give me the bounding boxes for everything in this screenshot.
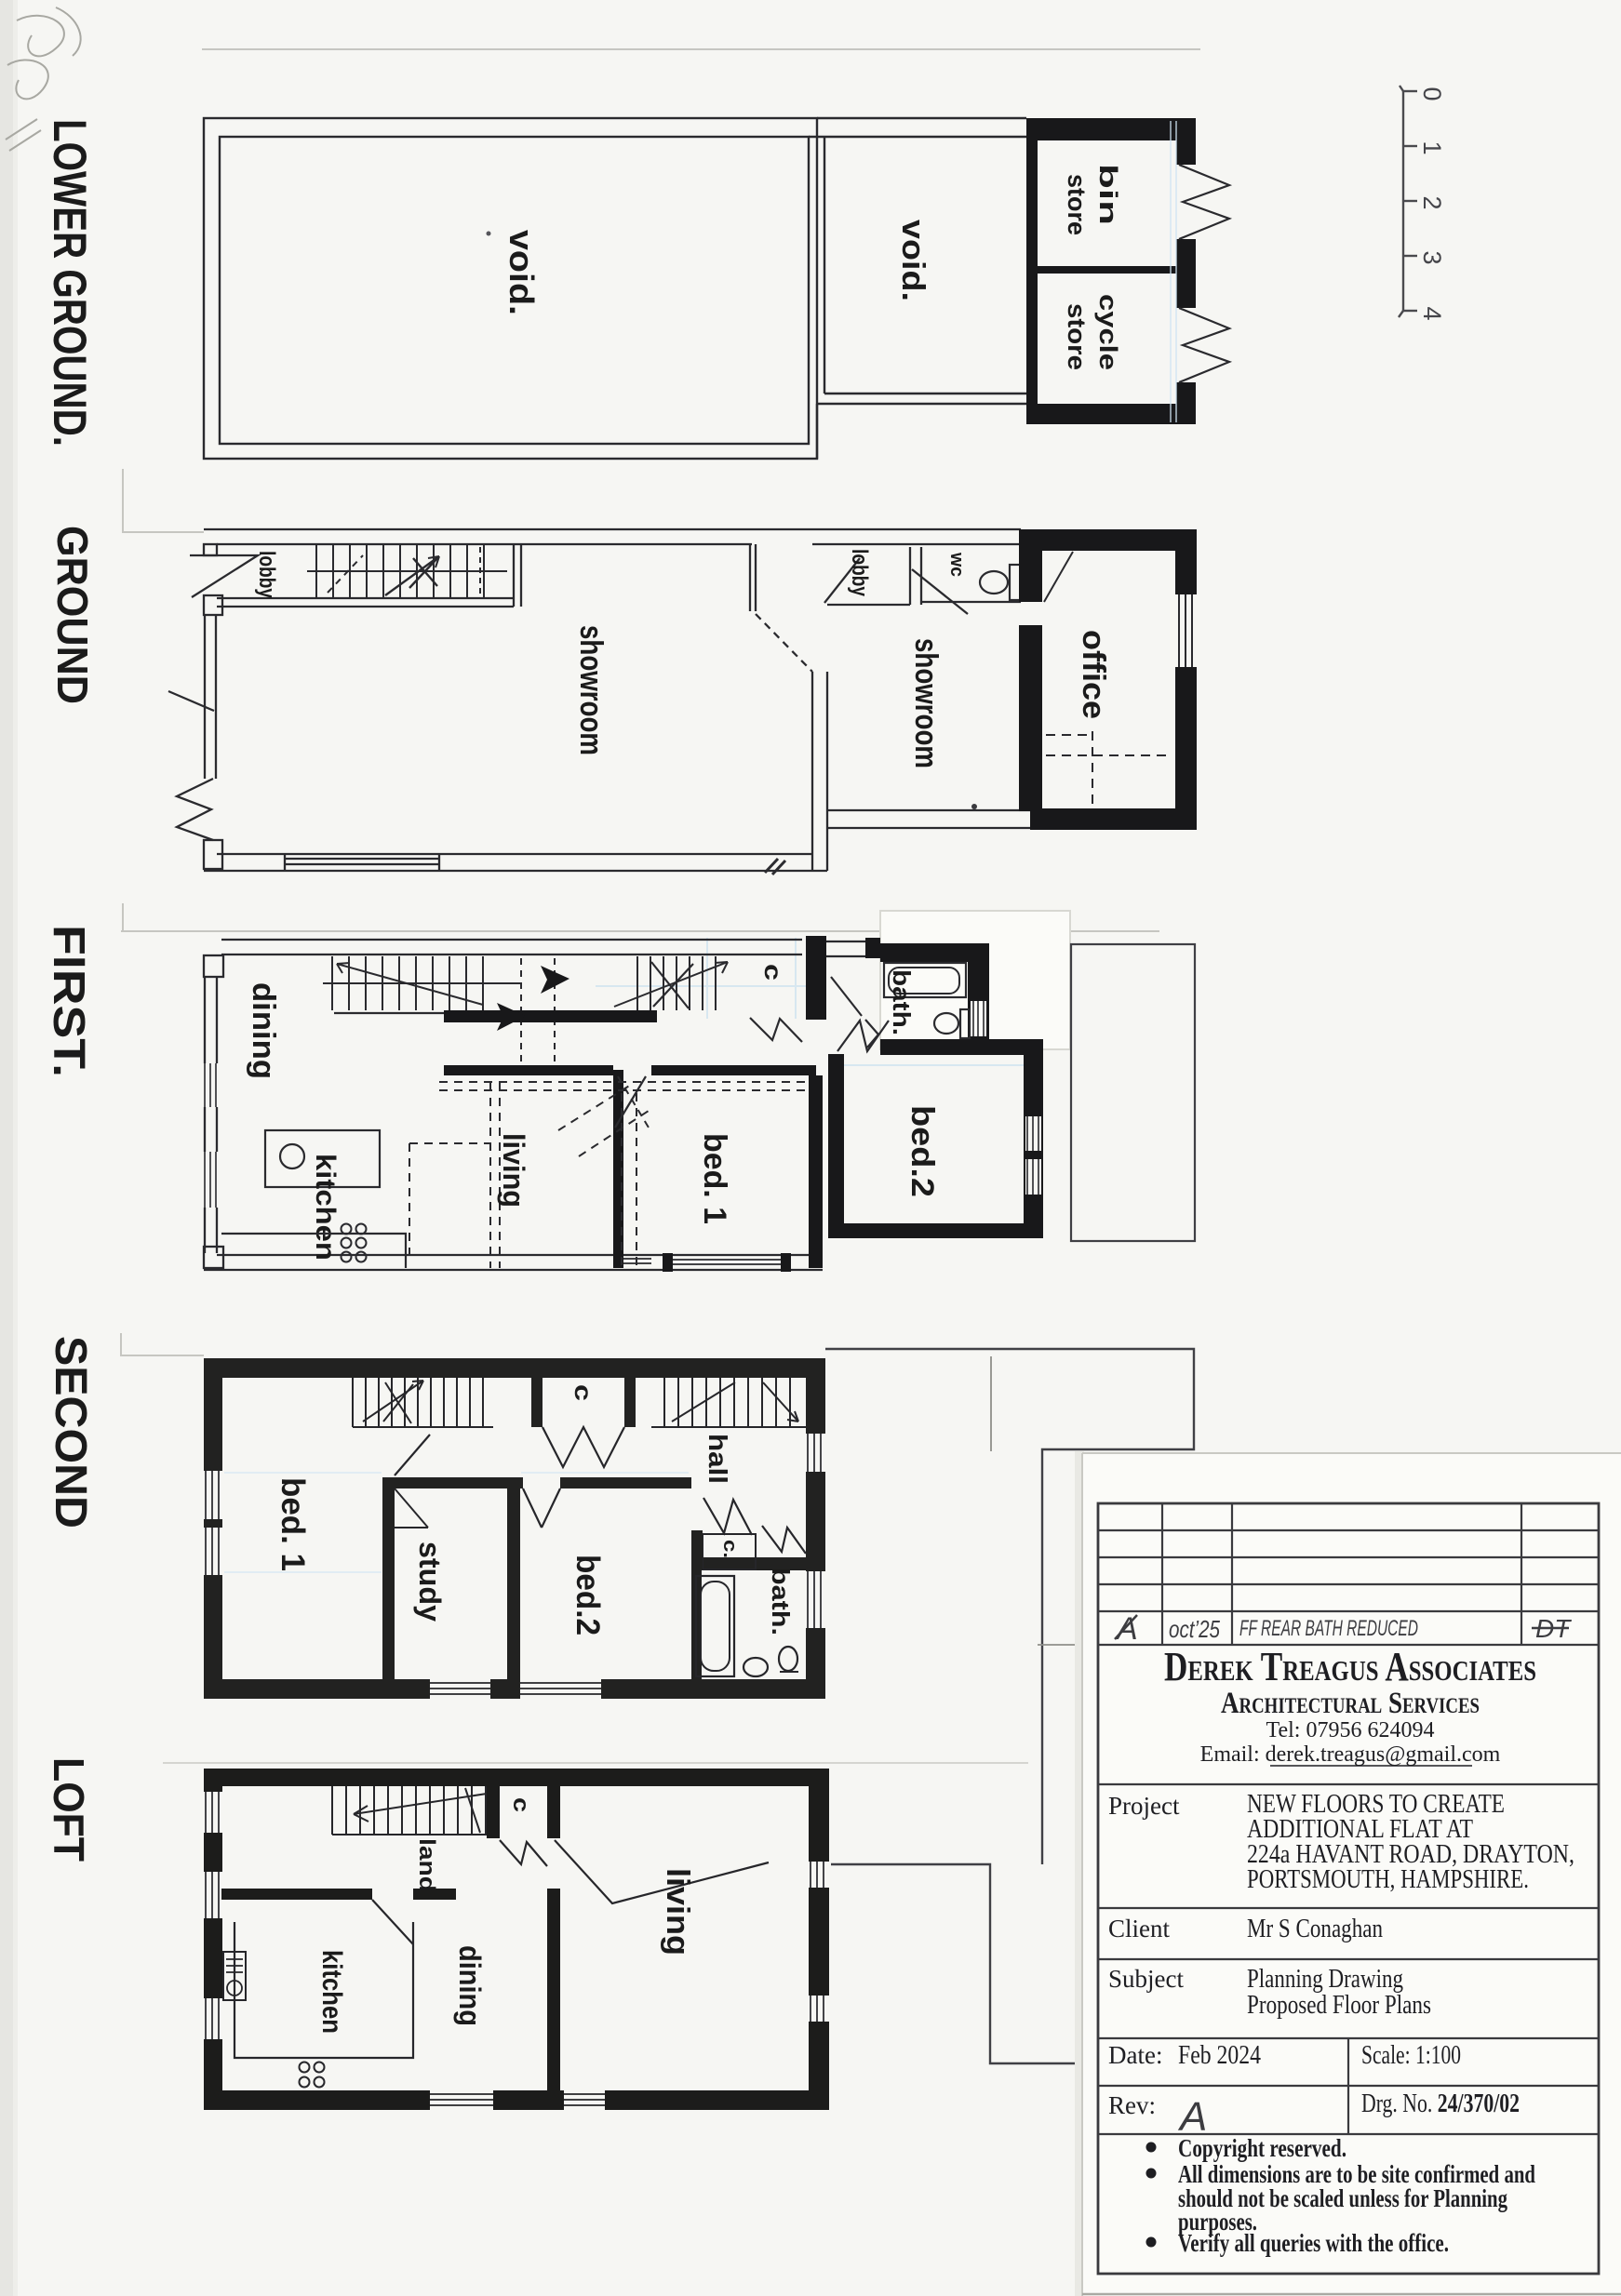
svg-text:store: store [1063, 303, 1091, 370]
svg-text:c: c [759, 964, 787, 981]
svg-text:bath.: bath. [767, 1568, 795, 1635]
svg-text:0: 0 [1418, 87, 1446, 100]
svg-text:Email: derek.treagus@gmail.co: Email: derek.treagus@gmail.com [1200, 1742, 1501, 1767]
svg-text:store: store [1063, 174, 1091, 235]
svg-text:LOFT: LOFT [45, 1757, 93, 1862]
svg-text:c.: c. [719, 1540, 740, 1558]
svg-text:Scale: 1:100: Scale: 1:100 [1361, 2040, 1461, 2070]
svg-text:Verify all queries with the of: Verify all queries with the office. [1178, 2229, 1449, 2257]
svg-text:Project: Project [1108, 1792, 1180, 1820]
svg-text:2: 2 [1418, 195, 1446, 209]
svg-text:bed. 1: bed. 1 [697, 1133, 732, 1224]
svg-text:lobby: lobby [847, 549, 872, 597]
svg-text:Feb 2024: Feb 2024 [1178, 2040, 1261, 2070]
svg-text:FIRST.: FIRST. [44, 925, 93, 1077]
svg-text:living: living [660, 1868, 695, 1956]
svg-text:Subject: Subject [1108, 1965, 1184, 1993]
svg-text:void.: void. [502, 230, 541, 315]
svg-text:void.: void. [895, 220, 931, 301]
svg-text:Derek Treagus Associates: Derek Treagus Associates [1164, 1644, 1536, 1689]
svg-text:oct’25: oct’25 [1169, 1615, 1220, 1643]
svg-text:hall: hall [703, 1434, 732, 1484]
svg-text:dining: dining [246, 982, 281, 1079]
svg-text:Drg. No. 24/370/02: Drg. No. 24/370/02 [1361, 2089, 1520, 2118]
svg-text:bath.: bath. [888, 969, 916, 1035]
svg-text:A: A [1177, 2094, 1207, 2140]
svg-text:bed.2: bed.2 [569, 1555, 606, 1635]
svg-text:Proposed Floor Plans: Proposed Floor Plans [1247, 1990, 1431, 2020]
svg-text:bin: bin [1094, 164, 1122, 225]
svg-text:bed. 1: bed. 1 [275, 1477, 311, 1571]
svg-text:Rev:: Rev: [1108, 2091, 1156, 2119]
svg-text:PORTSMOUTH, HAMPSHIRE.: PORTSMOUTH, HAMPSHIRE. [1247, 1864, 1529, 1894]
svg-text:showroom: showroom [908, 638, 944, 768]
svg-text:FF REAR BATH REDUCED: FF REAR BATH REDUCED [1239, 1616, 1418, 1641]
svg-text:kitchen: kitchen [316, 1950, 347, 2034]
svg-text:c: c [569, 1384, 597, 1401]
svg-text:SECOND: SECOND [46, 1336, 95, 1528]
svg-text:study: study [413, 1542, 447, 1622]
svg-text:Date:: Date: [1108, 2041, 1162, 2069]
svg-text:kitchen: kitchen [310, 1154, 341, 1261]
svg-text:showroom: showroom [573, 625, 609, 755]
svg-text:bed.2: bed.2 [904, 1105, 940, 1197]
svg-text:Tel: 07956 624094: Tel: 07956 624094 [1266, 1718, 1435, 1742]
svg-text:Architectural Services: Architectural Services [1221, 1687, 1480, 1720]
svg-text:living: living [497, 1133, 530, 1208]
svg-text:Copyright reserved.: Copyright reserved. [1178, 2134, 1346, 2162]
svg-text:LOWER GROUND.: LOWER GROUND. [44, 119, 96, 447]
svg-text:office: office [1076, 630, 1111, 719]
svg-text:wc: wc [946, 552, 967, 577]
svg-text:GROUND: GROUND [48, 526, 97, 704]
svg-text:4: 4 [1418, 306, 1446, 320]
svg-text:cycle: cycle [1094, 294, 1122, 370]
svg-text:land: land [414, 1838, 439, 1892]
svg-text:c: c [508, 1797, 533, 1812]
svg-text:Mr S Conaghan: Mr S Conaghan [1247, 1914, 1383, 1943]
svg-text:lobby: lobby [254, 551, 279, 599]
svg-text:1: 1 [1418, 140, 1446, 154]
svg-text:3: 3 [1418, 250, 1446, 264]
svg-text:dining: dining [453, 1945, 487, 2026]
svg-text:Client: Client [1108, 1915, 1170, 1942]
